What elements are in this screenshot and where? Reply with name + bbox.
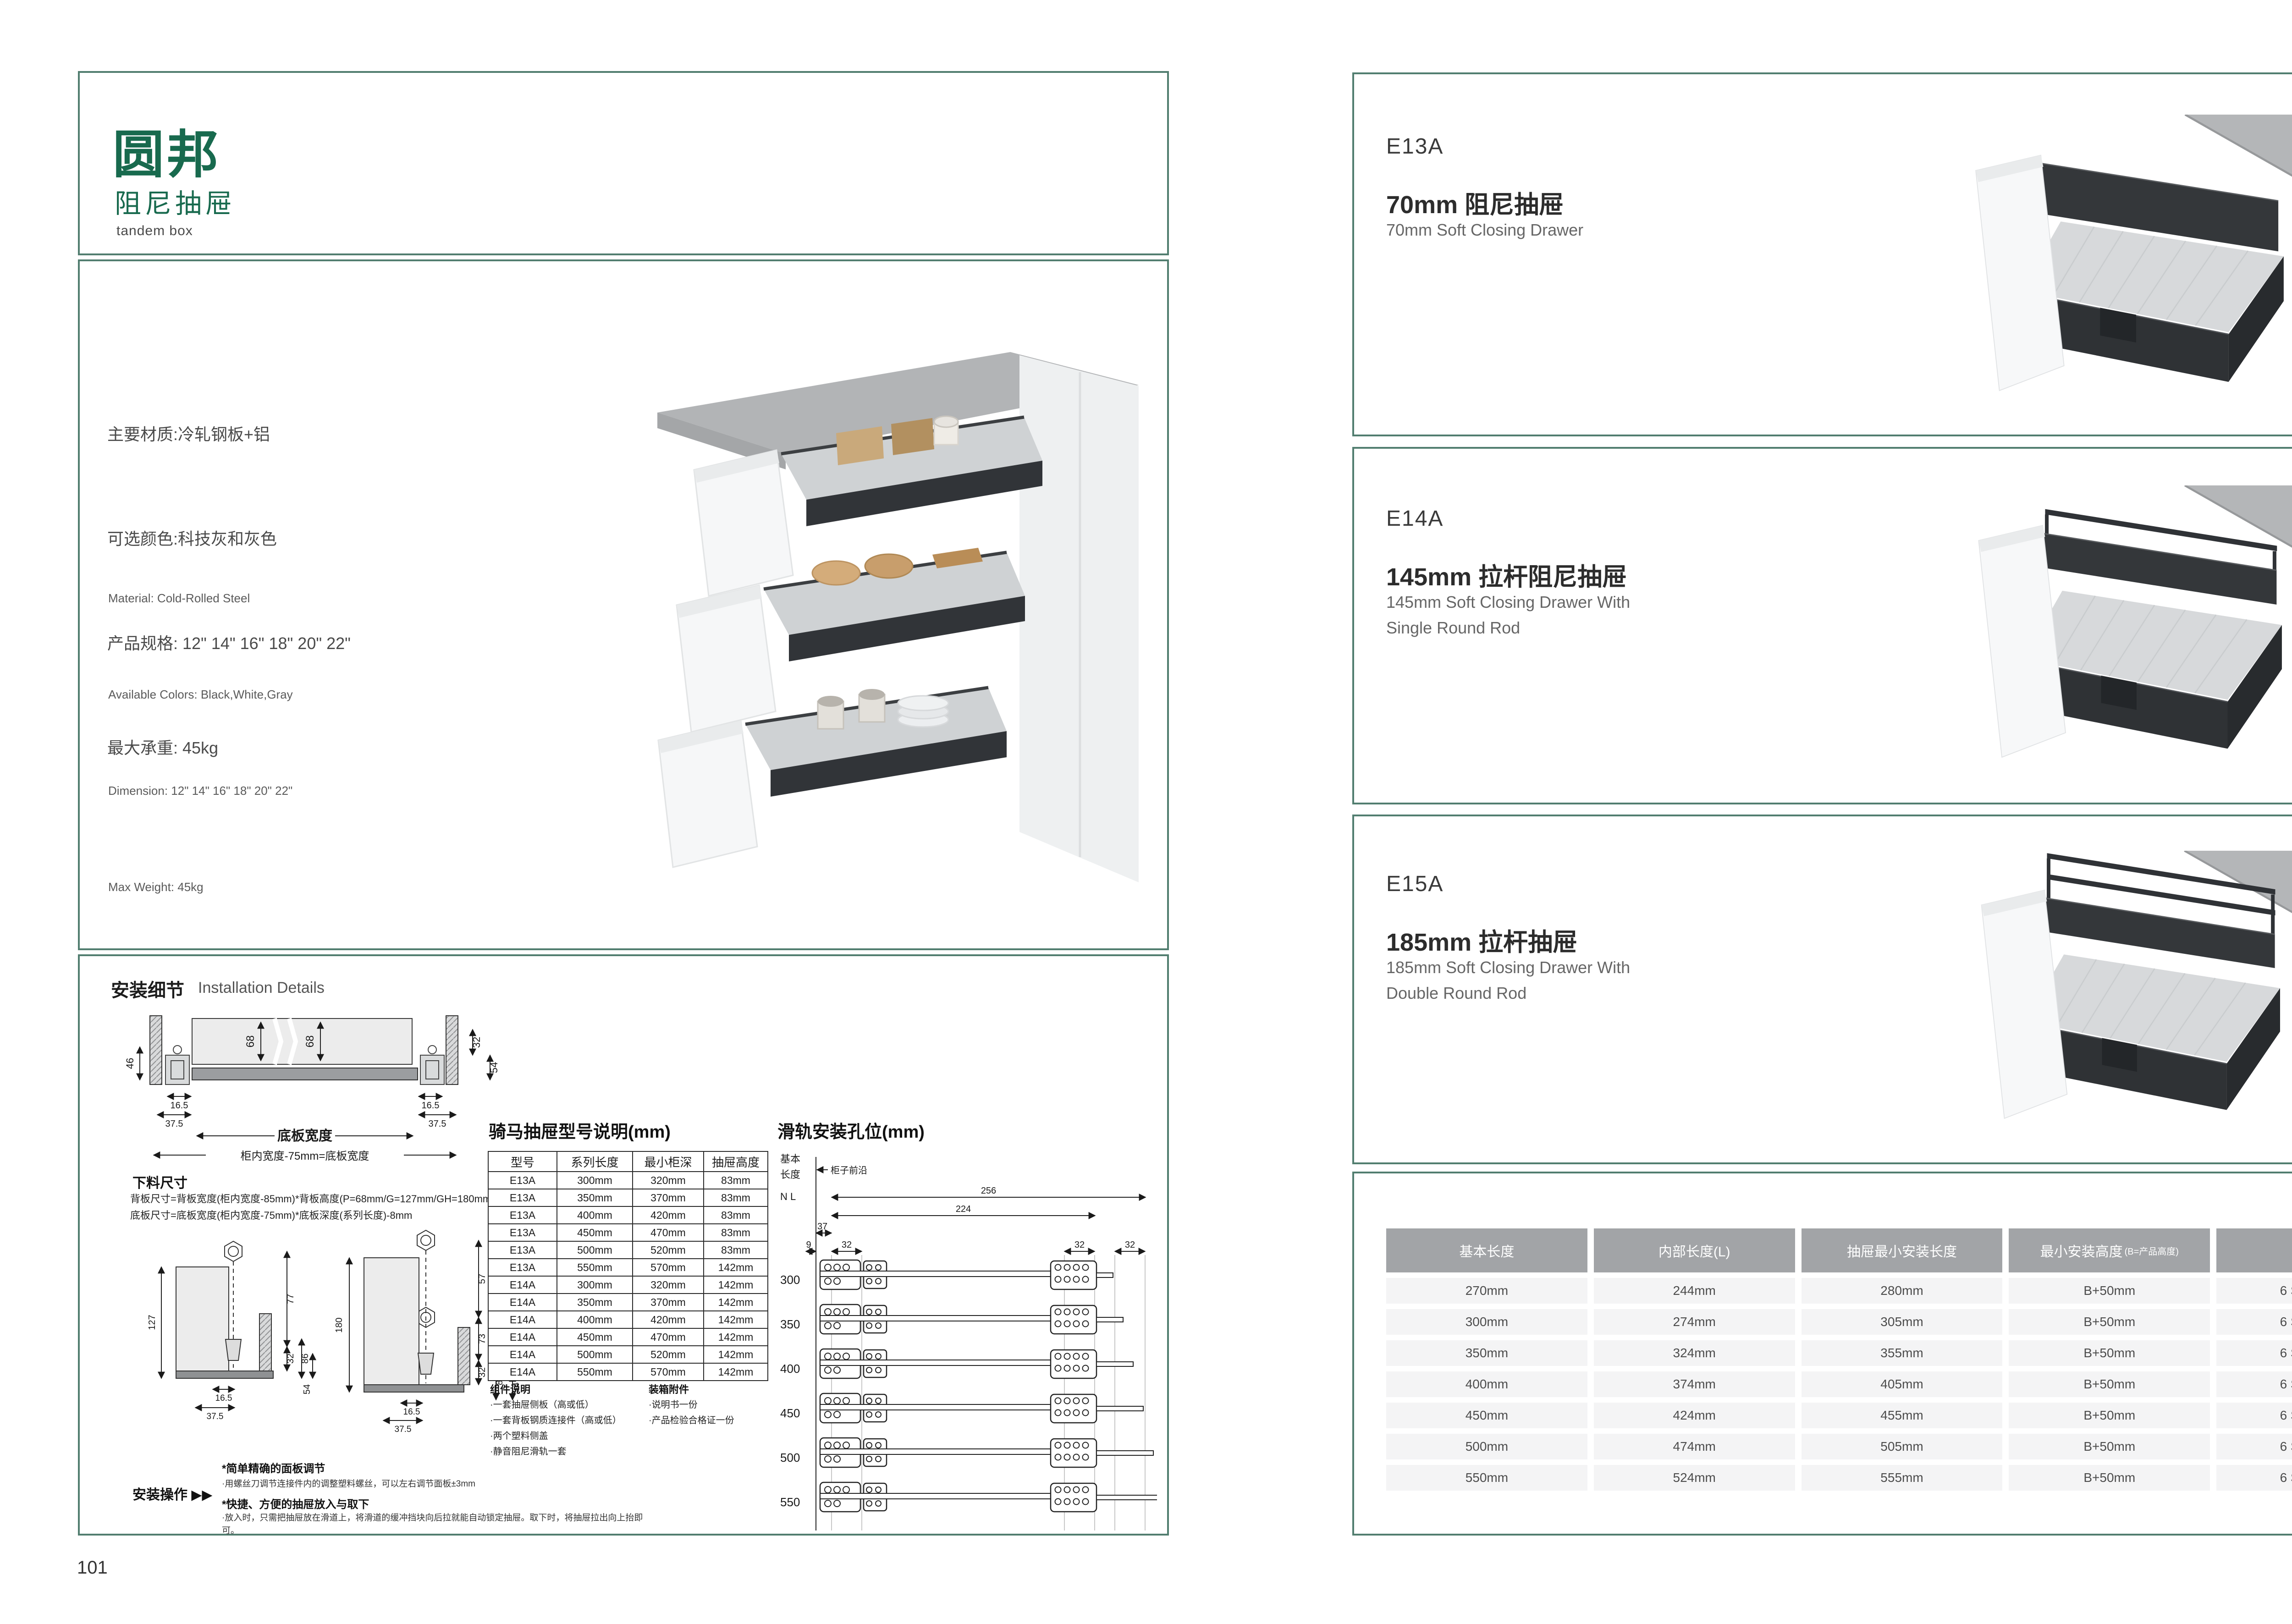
list-item: ·一套背板钢质连接件（高或低） <box>490 1413 622 1428</box>
table-cell: 520mm <box>633 1346 704 1363</box>
column-header: 抽屉最小安装长度 <box>1802 1228 2003 1272</box>
table-cell: 550mm <box>1386 1465 1587 1491</box>
column-header: 最小安装高度(B=产品高度) <box>2009 1228 2210 1272</box>
rail-holes-diagram: 基本长度N L柜子前沿25622437932323230035040045050… <box>777 1143 1157 1533</box>
table-cell: 142mm <box>704 1259 768 1276</box>
table-cell: 142mm <box>704 1294 768 1311</box>
table-row: E13A450mm470mm83mm <box>488 1224 768 1241</box>
product-model: E13A <box>1386 134 1444 159</box>
table-cell: 505mm <box>1802 1434 2003 1459</box>
table-cell: E13A <box>488 1224 557 1241</box>
brand-header-panel: 圆邦 阻尼抽屉 tandem box <box>78 71 1169 255</box>
table-cell: 424mm <box>1594 1403 1795 1428</box>
table-cell: E13A <box>488 1172 557 1189</box>
dim-label: 32 <box>477 1367 487 1377</box>
table-cell: 142mm <box>704 1311 768 1328</box>
model-table-title: 骑马抽屉型号说明(mm) <box>489 1118 671 1143</box>
rail-holes-title: 滑轨安装孔位(mm) <box>777 1118 925 1143</box>
product-title-cn: 70mm 阻尼抽屉 <box>1386 184 1564 220</box>
table-row: E14A300mm320mm142mm <box>488 1276 768 1294</box>
table-cell: 400mm <box>557 1311 633 1328</box>
list-item: ·一套抽屉侧板（高或低） <box>490 1397 622 1413</box>
cutting-size-line: 背板尺寸=背板宽度(柜内宽度-85mm)*背板高度(P=68mm/G=127mm… <box>130 1191 526 1206</box>
table-cell: 470mm <box>633 1224 704 1241</box>
dim-label: 16.5 <box>422 1101 440 1111</box>
svg-text:37: 37 <box>817 1222 827 1232</box>
table-cell: B+50mm <box>2009 1403 2210 1428</box>
column-header: 基本长度 <box>1386 1228 1587 1272</box>
dim-label: 54 <box>488 1062 500 1073</box>
column-header: 内部长度(L) <box>1594 1228 1795 1272</box>
table-cell: 400mm <box>1386 1371 1587 1397</box>
table-cell: B+50mm <box>2009 1340 2210 1366</box>
table-cell: 83mm <box>704 1189 768 1206</box>
table-cell: 274mm <box>1594 1309 1795 1335</box>
table-cell: 405mm <box>1802 1371 2003 1397</box>
table-cell: E14A <box>488 1311 557 1328</box>
dim-label: 127 <box>147 1315 157 1330</box>
table-cell: 370mm <box>633 1189 704 1206</box>
table-cell: 500mm <box>557 1346 633 1363</box>
table-cell: 270mm <box>1386 1278 1587 1304</box>
table-cell: 142mm <box>704 1276 768 1294</box>
svg-text:500: 500 <box>780 1451 800 1464</box>
accessories-list: ·说明书一份 ·产品检验合格证一份 <box>649 1397 734 1428</box>
table-cell: 320mm <box>633 1172 704 1189</box>
install-details-title-en: Installation Details <box>198 979 325 997</box>
dim-label: 16.5 <box>215 1393 232 1403</box>
svg-text:基本: 基本 <box>780 1153 800 1165</box>
size-table-panel: 基本长度内部长度(L)抽屉最小安装长度最小安装高度(B=产品高度)包装270mm… <box>1352 1172 2292 1536</box>
svg-text:256: 256 <box>981 1186 996 1196</box>
size-table: 基本长度内部长度(L)抽屉最小安装长度最小安装高度(B=产品高度)包装270mm… <box>1386 1228 2292 1496</box>
table-cell: 300mm <box>557 1276 633 1294</box>
spec-line: 主要材质:冷轧钢板+铝 <box>107 417 351 452</box>
table-cell: 305mm <box>1802 1309 2003 1335</box>
install-operation-label: 安装操作 ▶▶ <box>132 1483 213 1503</box>
product-section-e15a: E15A 185mm 拉杆抽屉 185mm Soft Closing Drawe… <box>1352 815 2292 1164</box>
list-item: ·两个塑料侧盖 <box>490 1428 622 1444</box>
svg-text:32: 32 <box>1074 1240 1085 1250</box>
op-heading: *简单精确的面板调节 <box>222 1459 325 1475</box>
table-row: E14A550mm570mm142mm <box>488 1363 768 1381</box>
spec-line: Available Colors: Black,White,Gray <box>108 678 293 710</box>
column-header: 最小柜深 <box>633 1151 704 1172</box>
dim-label: 73 <box>477 1334 487 1344</box>
dim-label: 16.5 <box>171 1101 188 1111</box>
spec-line: Material: Cold-Rolled Steel <box>108 582 293 614</box>
dim-label: 68 <box>304 1035 316 1048</box>
table-cell: 280mm <box>1802 1278 2003 1304</box>
table-cell: 350mm <box>557 1189 633 1206</box>
svg-text:350: 350 <box>780 1317 800 1331</box>
table-cell: 142mm <box>704 1346 768 1363</box>
dim-label: 54 <box>302 1384 312 1394</box>
product-title-en-line: 185mm Soft Closing Drawer With <box>1386 955 1630 980</box>
dim-label: 37.5 <box>429 1119 446 1129</box>
installation-details-panel: 安装细节 Installation Details 68 68 46 32 <box>78 954 1169 1536</box>
table-cell: 6 SETC/TNB <box>2216 1403 2292 1428</box>
inner-width-formula: 柜内宽度-75mm=底板宽度 <box>241 1150 369 1162</box>
side-diagram-low: 127 77 32 86 54 16.5 37.5 <box>144 1231 318 1424</box>
components-title: 组件说明 <box>490 1382 530 1396</box>
table-cell: 420mm <box>633 1206 704 1224</box>
product-title-en-line: 145mm Soft Closing Drawer With <box>1386 589 1630 615</box>
table-cell: 420mm <box>633 1311 704 1328</box>
spec-line: Max Weight: 45kg <box>108 871 293 903</box>
install-details-title-cn: 安装细节 <box>111 975 184 1002</box>
svg-text:550: 550 <box>780 1495 800 1509</box>
hero-product-photo <box>543 316 1139 912</box>
table-cell: 83mm <box>704 1172 768 1189</box>
table-cell: 83mm <box>704 1224 768 1241</box>
spec-line: Dimension: 12" 14" 16" 18" 20" 22" <box>108 775 293 807</box>
table-cell: 500mm <box>557 1241 633 1259</box>
dim-label: 16.5 <box>403 1407 420 1417</box>
accessories-title: 装箱附件 <box>649 1382 689 1396</box>
catalog-spread: 圆邦 阻尼抽屉 tandem box 主要材质:冷轧钢板+铝 可选颜色:科技灰和… <box>0 0 2292 1624</box>
svg-text:400: 400 <box>780 1362 800 1376</box>
table-cell: 524mm <box>1594 1465 1795 1491</box>
table-cell: 570mm <box>633 1259 704 1276</box>
product-title-en: 145mm Soft Closing Drawer With Single Ro… <box>1386 589 1630 641</box>
double-arrow-icon: ▶▶ <box>191 1487 212 1503</box>
table-cell: 474mm <box>1594 1434 1795 1459</box>
table-row: E14A400mm420mm142mm <box>488 1311 768 1328</box>
specs-english: Material: Cold-Rolled Steel Available Co… <box>108 518 293 967</box>
table-row: E14A350mm370mm142mm <box>488 1294 768 1311</box>
table-cell: 520mm <box>633 1241 704 1259</box>
table-cell: B+50mm <box>2009 1434 2210 1459</box>
table-cell: 142mm <box>704 1328 768 1346</box>
product-title-en-line: Double Round Rod <box>1386 980 1630 1006</box>
table-cell: E13A <box>488 1189 557 1206</box>
svg-text:长度: 长度 <box>780 1169 800 1180</box>
brand-tagline: tandem box <box>116 223 193 239</box>
table-cell: 370mm <box>633 1294 704 1311</box>
product-title-en-line: 70mm Soft Closing Drawer <box>1386 217 1583 243</box>
list-item: ·产品检验合格证一份 <box>649 1413 734 1428</box>
table-cell: 450mm <box>557 1328 633 1346</box>
table-cell: E14A <box>488 1276 557 1294</box>
svg-text:9: 9 <box>806 1240 811 1250</box>
table-cell: E13A <box>488 1241 557 1259</box>
table-cell: 550mm <box>557 1259 633 1276</box>
product-title-en: 70mm Soft Closing Drawer <box>1386 217 1583 243</box>
table-cell: E13A <box>488 1206 557 1224</box>
table-row: E14A500mm520mm142mm <box>488 1346 768 1363</box>
dim-label: 77 <box>286 1294 296 1304</box>
product-section-e14a: E14A 145mm 拉杆阻尼抽屉 145mm Soft Closing Dra… <box>1352 447 2292 804</box>
dim-label: 37.5 <box>395 1425 412 1434</box>
product-overview-panel: 主要材质:冷轧钢板+铝 可选颜色:科技灰和灰色 产品规格: 12" 14" 16… <box>78 259 1169 950</box>
svg-text:32: 32 <box>842 1240 852 1250</box>
product-photo-e15a <box>1911 851 2292 1144</box>
list-item: ·静音阻尼滑轨一套 <box>490 1444 622 1459</box>
product-title-en-line: Single Round Rod <box>1386 615 1630 641</box>
dim-label: 46 <box>124 1058 136 1069</box>
bottom-width-label: 底板宽度 <box>277 1128 332 1144</box>
table-cell: 6 SETC/TNB <box>2216 1465 2292 1491</box>
table-cell: 570mm <box>633 1363 704 1381</box>
table-cell: 350mm <box>557 1294 633 1311</box>
table-cell: 470mm <box>633 1328 704 1346</box>
table-row: E14A450mm470mm142mm <box>488 1328 768 1346</box>
op-bullet: ·放入时，只需把抽屉放在滑道上，将滑道的缓冲挡块向后拉就能自动锁定抽屉。取下时，… <box>222 1512 644 1537</box>
table-cell: 450mm <box>557 1224 633 1241</box>
page-number-left: 101 <box>77 1558 108 1578</box>
table-cell: 450mm <box>1386 1403 1587 1428</box>
svg-text:450: 450 <box>780 1406 800 1420</box>
op-heading: *快捷、方便的抽屉放入与取下 <box>222 1495 369 1511</box>
table-cell: 350mm <box>1386 1340 1587 1366</box>
table-cell: 83mm <box>704 1241 768 1259</box>
table-cell: E14A <box>488 1328 557 1346</box>
dim-label: 37.5 <box>207 1412 224 1421</box>
product-title-cn: 145mm 拉杆阻尼抽屉 <box>1386 556 1627 593</box>
svg-text:32: 32 <box>1125 1240 1135 1250</box>
table-cell: 550mm <box>557 1363 633 1381</box>
table-cell: 455mm <box>1802 1403 2003 1428</box>
brand-subtitle: 阻尼抽屉 <box>115 182 236 220</box>
table-cell: 142mm <box>704 1363 768 1381</box>
table-cell: B+50mm <box>2009 1278 2210 1304</box>
cutting-size-title: 下料尺寸 <box>132 1172 187 1192</box>
product-photo-e14a <box>1911 485 2292 783</box>
model-spec-table: 型号系列长度最小柜深抽屉高度E13A300mm320mm83mmE13A350m… <box>488 1151 768 1381</box>
table-cell: 320mm <box>633 1276 704 1294</box>
install-operation-text: 安装操作 <box>132 1487 187 1503</box>
table-row: E13A500mm520mm83mm <box>488 1241 768 1259</box>
column-header: 系列长度 <box>557 1151 633 1172</box>
table-cell: B+50mm <box>2009 1465 2210 1491</box>
cutting-size-line: 底板尺寸=底板宽度(柜内宽度-75mm)*底板深度(系列长度)-8mm <box>130 1207 412 1222</box>
table-cell: E14A <box>488 1294 557 1311</box>
dim-label: 32 <box>471 1037 482 1048</box>
column-header: 抽屉高度 <box>704 1151 768 1172</box>
table-cell: 300mm <box>1386 1309 1587 1335</box>
table-cell: 300mm <box>557 1172 633 1189</box>
cross-section-diagram: 68 68 46 32 54 16.5 37.5 16.5 37.5 <box>123 1011 527 1167</box>
table-cell: E13A <box>488 1259 557 1276</box>
brand-logo: 圆邦 <box>113 113 221 187</box>
product-photo-e13a <box>1911 115 2292 417</box>
table-cell: 6 SETC/TNB <box>2216 1371 2292 1397</box>
table-cell: 6 SETC/TNB <box>2216 1434 2292 1459</box>
table-cell: 6 SETC/TNB <box>2216 1340 2292 1366</box>
dim-label: 180 <box>334 1317 344 1332</box>
table-cell: E14A <box>488 1363 557 1381</box>
table-cell: 6 SETC/TNB <box>2216 1309 2292 1335</box>
svg-text:柜子前沿: 柜子前沿 <box>831 1165 867 1176</box>
table-cell: 374mm <box>1594 1371 1795 1397</box>
table-cell: B+50mm <box>2009 1371 2210 1397</box>
svg-text:224: 224 <box>956 1204 971 1214</box>
product-section-e13a: E13A 70mm 阻尼抽屉 70mm Soft Closing Drawer <box>1352 72 2292 436</box>
product-title-en: 185mm Soft Closing Drawer With Double Ro… <box>1386 955 1630 1006</box>
table-cell: 83mm <box>704 1206 768 1224</box>
table-cell: 500mm <box>1386 1434 1587 1459</box>
table-row: E13A300mm320mm83mm <box>488 1172 768 1189</box>
product-title-cn: 185mm 拉杆抽屉 <box>1386 922 1577 958</box>
dim-label: 37.5 <box>165 1119 183 1129</box>
table-row: E13A550mm570mm142mm <box>488 1259 768 1276</box>
table-cell: 324mm <box>1594 1340 1795 1366</box>
table-cell: 400mm <box>557 1206 633 1224</box>
table-row: E13A350mm370mm83mm <box>488 1189 768 1206</box>
table-row: E13A400mm420mm83mm <box>488 1206 768 1224</box>
table-cell: 555mm <box>1802 1465 2003 1491</box>
table-cell: 355mm <box>1802 1340 2003 1366</box>
table-cell: 6 SETC/TNB <box>2216 1278 2292 1304</box>
dim-label: 57 <box>477 1274 487 1284</box>
svg-text:300: 300 <box>780 1273 800 1287</box>
table-cell: E14A <box>488 1346 557 1363</box>
list-item: ·说明书一份 <box>649 1397 734 1413</box>
table-cell: B+50mm <box>2009 1309 2210 1335</box>
product-model: E15A <box>1386 871 1444 897</box>
product-model: E14A <box>1386 506 1444 531</box>
components-list: ·一套抽屉侧板（高或低） ·一套背板钢质连接件（高或低） ·两个塑料侧盖 ·静音… <box>490 1397 622 1459</box>
column-header: 型号 <box>488 1151 557 1172</box>
table-cell: 244mm <box>1594 1278 1795 1304</box>
dim-label: 86 <box>300 1354 310 1364</box>
svg-text:N L: N L <box>780 1191 796 1202</box>
op-bullet: ·用螺丝刀调节连接件内的调整塑料螺丝，可以左右调节面板±3mm <box>222 1478 475 1491</box>
dim-label: 68 <box>244 1035 257 1048</box>
column-header: 包装 <box>2216 1228 2292 1272</box>
dim-label: 32 <box>286 1354 296 1364</box>
